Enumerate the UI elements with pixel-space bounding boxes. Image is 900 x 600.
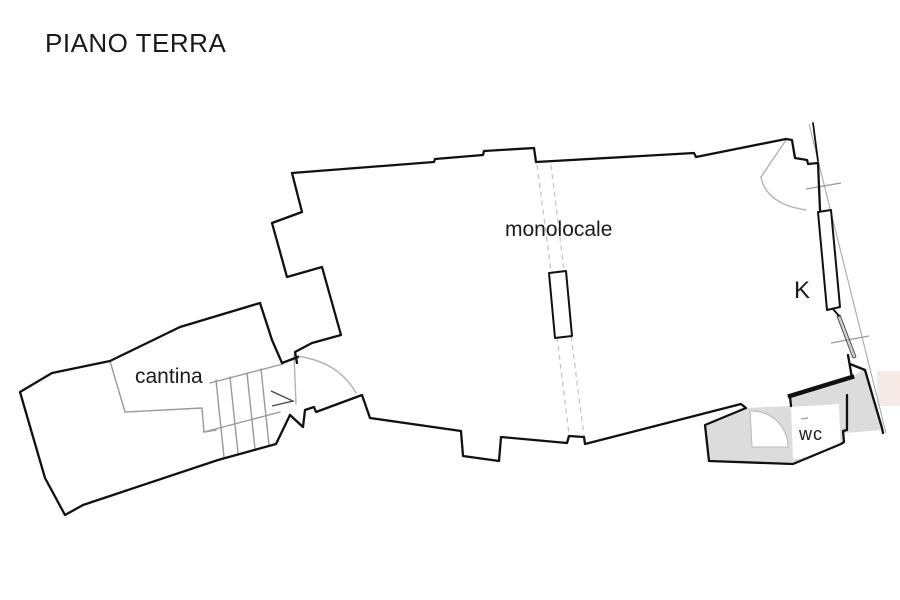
label-wc: wc: [798, 424, 823, 444]
kitchen-wall-niche: [818, 210, 840, 310]
stair-tread: [216, 380, 224, 457]
interior-door: [294, 355, 356, 404]
entrance-door: [761, 140, 806, 210]
stair-tread: [230, 377, 238, 453]
stair-tread: [261, 369, 269, 445]
door-leaf: [294, 355, 296, 404]
wc-right-connection-wall: [848, 355, 852, 378]
wc-door-jamb: [790, 396, 791, 406]
adjacent-area-highlight: [877, 371, 900, 406]
page-title: PIANO TERRA: [45, 28, 226, 58]
stair-rail: [204, 412, 280, 432]
cantina-right-wall: [260, 303, 298, 363]
wall-jog: [833, 309, 839, 316]
door-leaf: [761, 140, 786, 177]
stair-direction-arrow: [271, 391, 293, 406]
floor-plan-drawing: PIANO TERRA monolocale cantina K wc: [0, 0, 900, 600]
cantina-outline: [20, 303, 290, 515]
stair-tread: [247, 373, 255, 449]
label-kitchen: K: [794, 277, 810, 304]
label-cantina: cantina: [135, 365, 203, 388]
window: [837, 315, 856, 358]
pillar: [549, 271, 572, 338]
door-swing-arc: [761, 177, 806, 210]
staircase: [204, 364, 293, 457]
label-monolocale: monolocale: [505, 218, 612, 241]
door-swing-arc: [297, 356, 356, 393]
monolocale-top-left-walls: [272, 139, 786, 363]
